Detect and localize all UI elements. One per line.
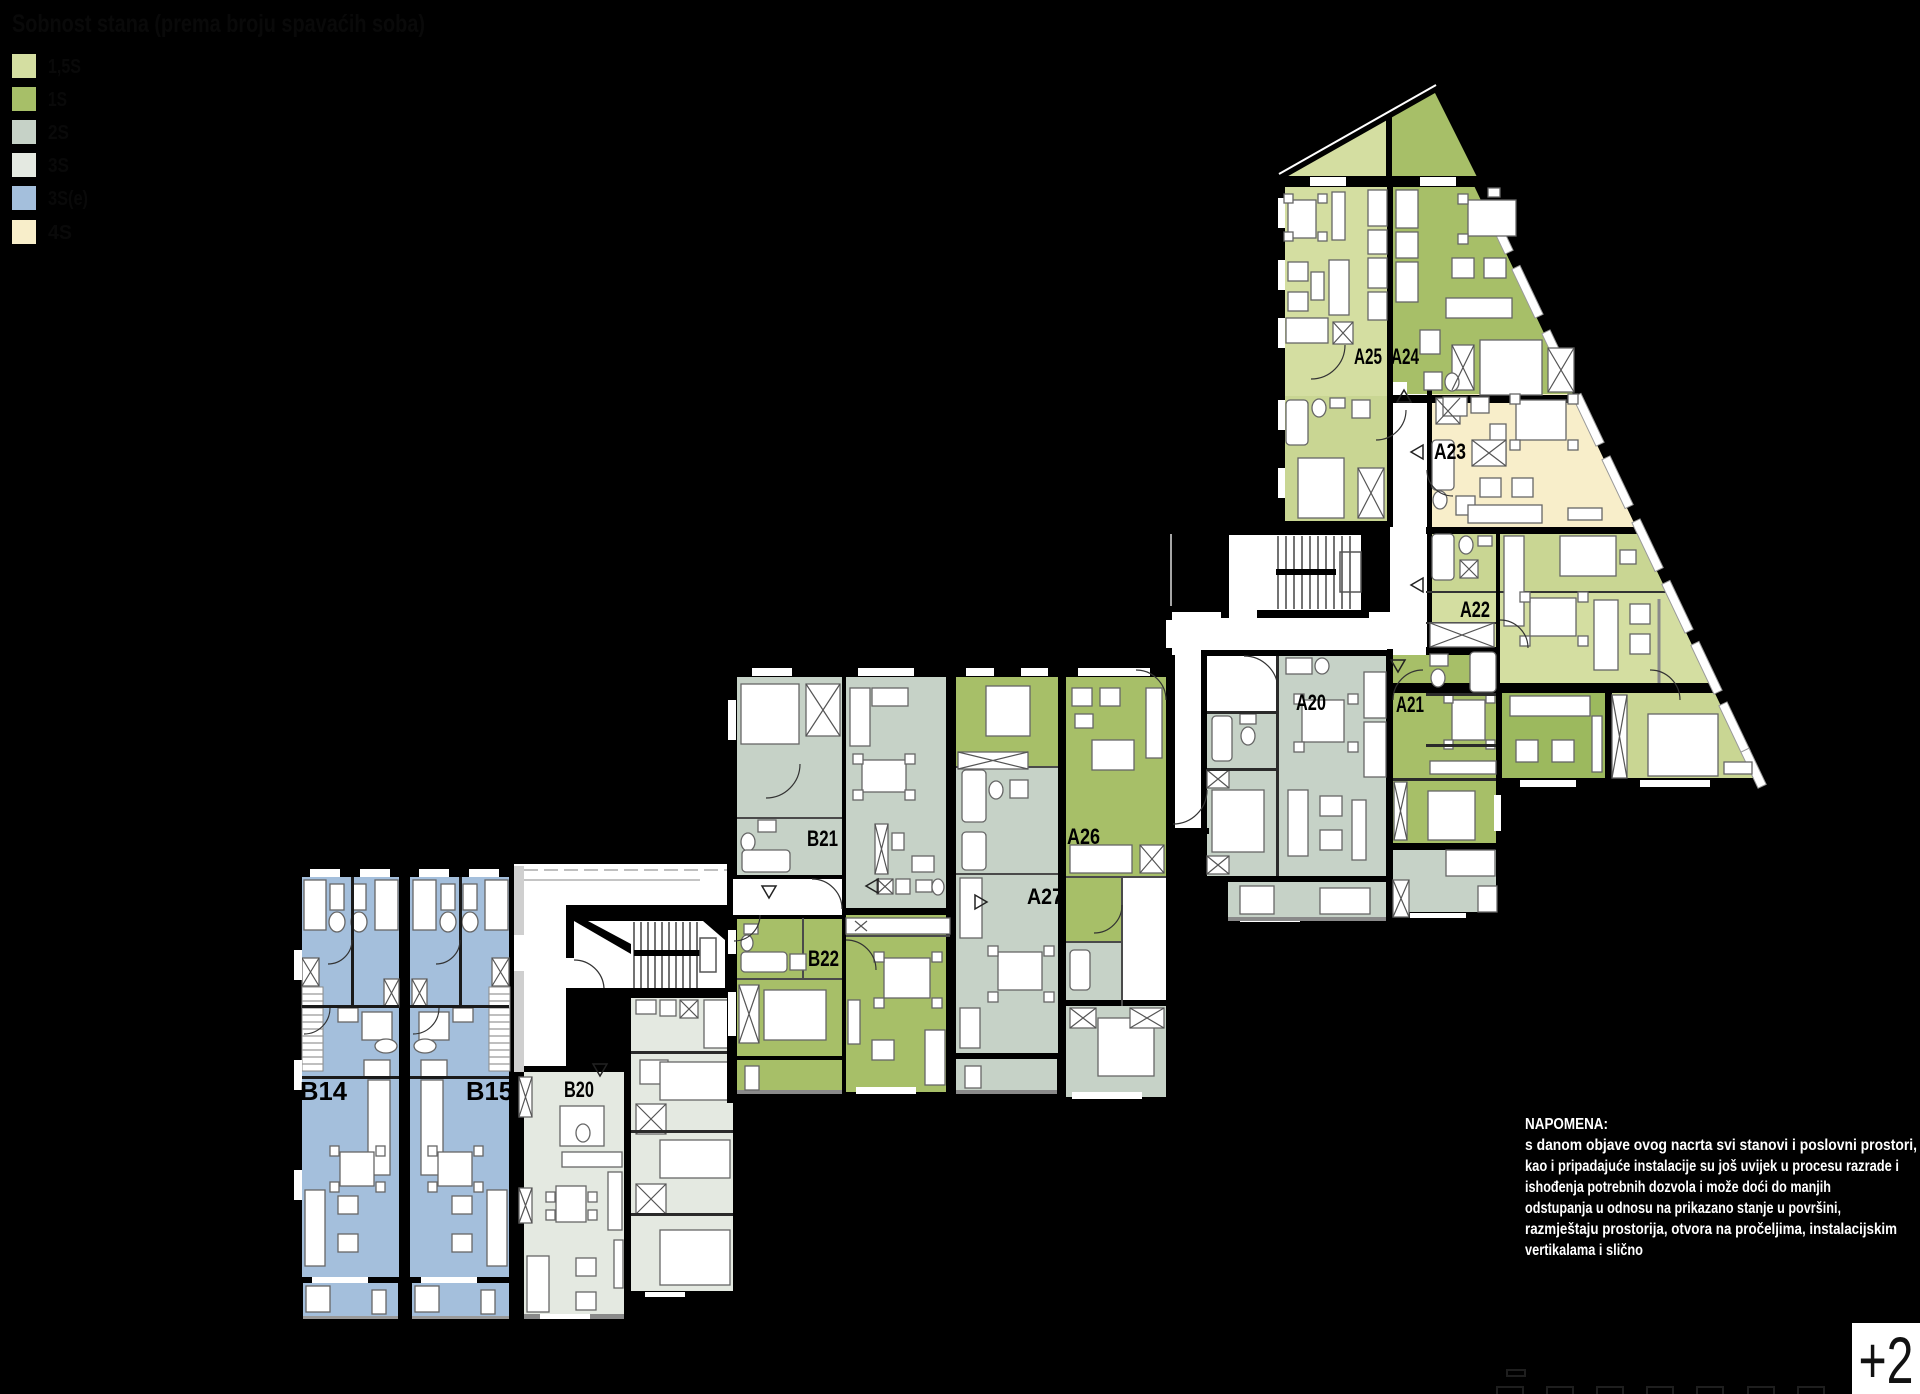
svg-text:razmještaju prostorija, otvora: razmještaju prostorija, otvora na pročel…	[1525, 1221, 1897, 1238]
svg-text:s danom objave ovog nacrta svi: s danom objave ovog nacrta svi stanovi i…	[1525, 1137, 1917, 1154]
svg-text:3S(e): 3S(e)	[48, 188, 88, 210]
svg-text:2S: 2S	[48, 122, 69, 144]
svg-text:B21: B21	[807, 826, 838, 851]
svg-text:B14: B14	[300, 1076, 348, 1106]
svg-text:4S: 4S	[48, 222, 72, 244]
svg-text:A22: A22	[1460, 597, 1490, 622]
svg-text:A23: A23	[1434, 439, 1466, 464]
svg-text:kao i pripadajuće instalacije: kao i pripadajuće instalacije su još uvi…	[1525, 1158, 1899, 1175]
svg-text:Sobnost stana (prema broju spa: Sobnost stana (prema broju spavaćih soba…	[12, 10, 425, 38]
svg-text:1S: 1S	[48, 89, 67, 111]
svg-text:A25: A25	[1354, 344, 1382, 369]
svg-text:A24: A24	[1391, 344, 1420, 369]
svg-text:B22: B22	[808, 946, 839, 971]
svg-text:A21: A21	[1396, 692, 1424, 717]
svg-text:B20: B20	[564, 1077, 594, 1102]
svg-text:1,5S: 1,5S	[48, 56, 81, 78]
svg-text:odstupanja u odnosu na prikaza: odstupanja u odnosu na prikazano stanje …	[1525, 1200, 1841, 1217]
svg-text:A26: A26	[1067, 824, 1100, 849]
svg-text:+2: +2	[1859, 1323, 1914, 1394]
svg-text:A27: A27	[1027, 884, 1063, 909]
svg-text:ishođenja potrebnih dozvola i: ishođenja potrebnih dozvola i može doći …	[1525, 1179, 1831, 1196]
svg-text:NAPOMENA:: NAPOMENA:	[1525, 1116, 1608, 1133]
svg-text:vertikalama i slično: vertikalama i slično	[1525, 1242, 1643, 1259]
svg-text:A20: A20	[1296, 690, 1326, 715]
svg-text:B15: B15	[466, 1076, 513, 1106]
svg-text:3S: 3S	[48, 155, 69, 177]
